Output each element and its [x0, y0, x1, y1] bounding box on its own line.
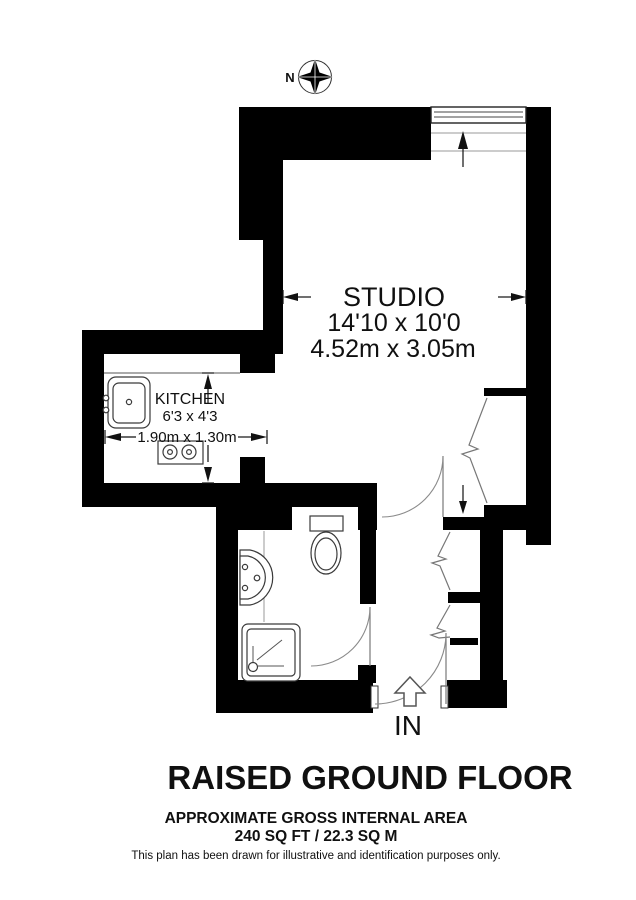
wall-right [526, 107, 551, 545]
wall-entry-right [447, 680, 507, 708]
bathroom-area [240, 516, 370, 681]
wall-bathroom-right [360, 517, 376, 604]
hall-step-down-arrow-icon [459, 501, 467, 514]
kitchen-metric-dims: 1.90m x 1.30m [137, 429, 236, 446]
wall-kitchen-top [82, 330, 265, 354]
entry-in-label: IN [394, 710, 422, 741]
window-frame [431, 107, 526, 123]
toilet [310, 516, 343, 574]
walls [82, 107, 551, 713]
wall-bathroom-left [216, 483, 238, 713]
kitchen-vdim-arrow-up-icon [204, 374, 212, 389]
studio-window [431, 107, 526, 167]
disclaimer-text: This plan has been drawn for illustrativ… [131, 850, 500, 862]
bathroom-door [311, 607, 370, 666]
kitchen-imperial-dims: 6'3 x 4'3 [163, 408, 218, 425]
wall-cupboard-nib-top [484, 388, 526, 396]
basin-tap-2 [242, 585, 247, 590]
wall-bathroom-top-left [238, 507, 292, 530]
kitchen-name-label: KITCHEN [155, 391, 225, 408]
entrance: IN [371, 633, 448, 741]
compass-star-facets [297, 59, 333, 95]
studio-metric-dims: 4.52m x 3.05m [310, 335, 475, 363]
shower [242, 624, 300, 681]
kitchen-dim-arrow-left-icon [105, 433, 121, 441]
kitchen-vdim-arrow-down-icon [204, 467, 212, 482]
kitchen-dim-arrow-right-icon [251, 433, 267, 441]
studio-imperial-dims: 14'10 x 10'0 [327, 309, 460, 337]
studio-labels: STUDIO 14'10 x 10'0 4.52m x 3.05m [310, 282, 475, 363]
wall-kitchen-bottom [82, 483, 238, 507]
hob-burner-1-dot [168, 450, 173, 455]
toilet-bowl-inner [315, 538, 337, 570]
hall-cupboard-door-lower [431, 605, 450, 638]
entry-in-arrow-icon [395, 677, 425, 706]
wall-hall-cupboard-nib [448, 592, 480, 603]
studio-dim-arrow-left-icon [283, 293, 298, 301]
studio-name-label: STUDIO [343, 282, 445, 312]
kitchen-dim-vertical [202, 373, 214, 483]
shower-drain [249, 663, 258, 672]
compass-north-label: N [285, 70, 294, 85]
floorplan-page: N [0, 0, 636, 900]
sink-tap-1 [103, 395, 109, 401]
wall-bathroom-bottom [216, 680, 373, 713]
wall-studio-bottom [238, 483, 377, 507]
wall-cupboard-nib-bottom [484, 505, 526, 517]
studio-dim-arrow-right-icon [511, 293, 526, 301]
studio-door-swing-arc [382, 456, 443, 517]
studio-cupboard-door [462, 398, 487, 503]
floorplan-drawing: N [0, 0, 636, 900]
area-value: 240 SQ FT / 22.3 SQ M [235, 828, 398, 845]
hall-cupboard-door-upper [432, 532, 450, 590]
entry-jamb-right [441, 686, 448, 708]
toilet-cistern [310, 516, 343, 531]
wall-kitchen-left [82, 330, 104, 507]
sink-drain [126, 399, 131, 404]
wall-nib-kitchen-lower [240, 457, 265, 483]
basin [240, 550, 273, 605]
window-up-arrow-icon [458, 131, 468, 149]
floor-title: RAISED GROUND FLOOR [167, 759, 572, 796]
wall-hall-cupboard-nib-lower [450, 638, 478, 645]
hob-burner-2-dot [187, 450, 192, 455]
footer-titles: RAISED GROUND FLOOR APPROXIMATE GROSS IN… [131, 759, 572, 862]
wall-bathroom-step-nib [358, 665, 376, 683]
wall-left-mid [263, 240, 283, 354]
compass-rose: N [285, 59, 333, 95]
area-heading: APPROXIMATE GROSS INTERNAL AREA [165, 810, 468, 827]
sink-tap-2 [103, 407, 109, 413]
bathroom-door-swing-arc [311, 607, 370, 666]
wall-nib-kitchen-upper [240, 354, 275, 373]
entry-jamb-left [371, 686, 378, 708]
wall-hall-top [443, 517, 551, 530]
basin-tap-1 [242, 564, 247, 569]
kitchen-sink [103, 377, 150, 428]
basin-drain [254, 575, 260, 581]
studio-door [382, 456, 467, 517]
wall-left-upper [239, 107, 283, 240]
